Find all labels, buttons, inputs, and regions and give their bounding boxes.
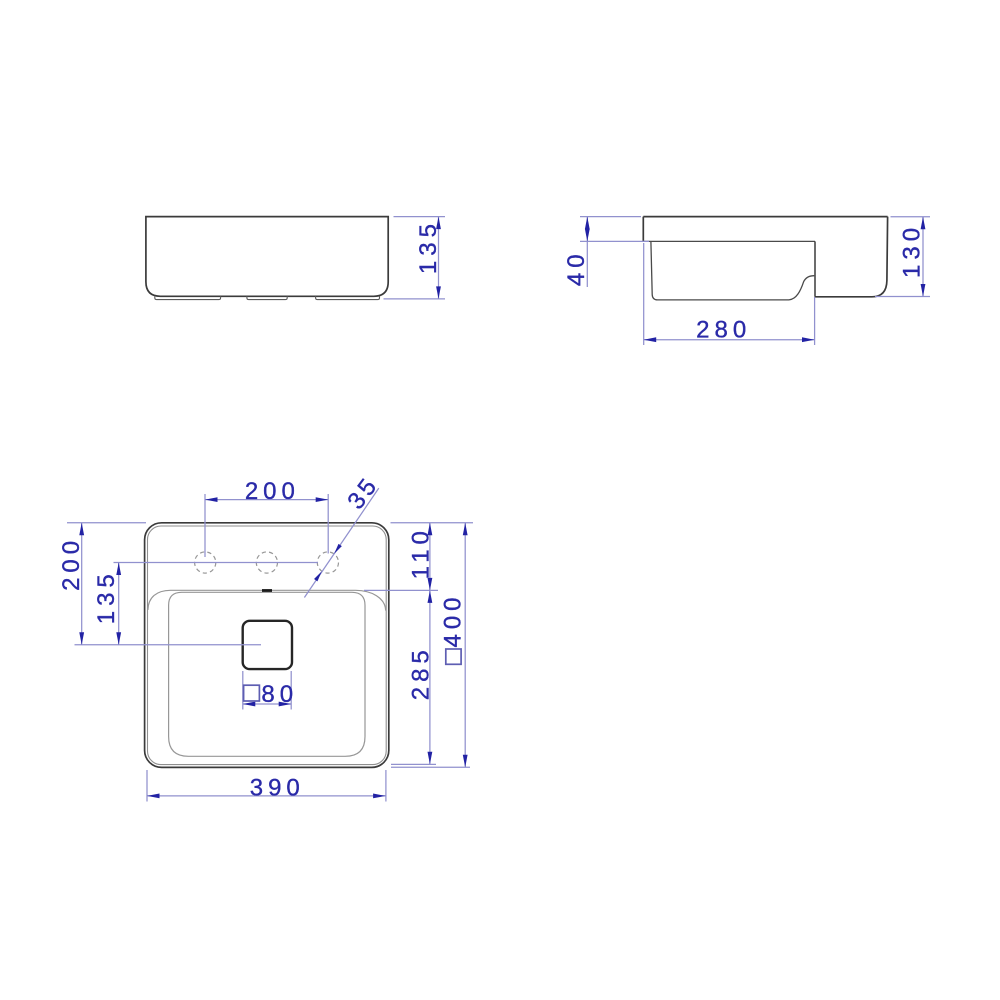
svg-text:40: 40 [563,249,590,286]
svg-text:135: 135 [415,219,442,274]
svg-text:390: 390 [250,774,305,801]
svg-text:200: 200 [58,536,85,591]
svg-text:400: 400 [440,592,467,647]
svg-text:130: 130 [899,223,926,278]
svg-text:285: 285 [408,645,435,700]
svg-text:110: 110 [408,526,435,579]
svg-text:80: 80 [261,681,298,708]
svg-text:280: 280 [696,316,751,343]
svg-text:135: 135 [93,569,120,624]
svg-text:200: 200 [245,478,300,505]
